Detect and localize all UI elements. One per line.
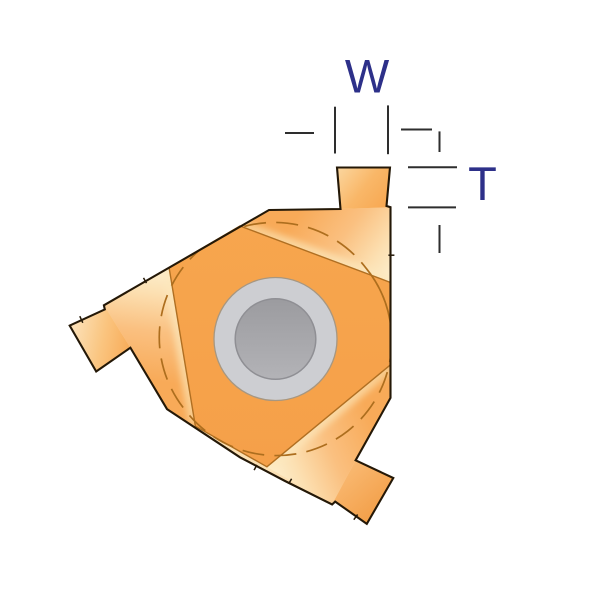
svg-text:W: W [345,50,390,103]
svg-text:T: T [468,157,497,210]
